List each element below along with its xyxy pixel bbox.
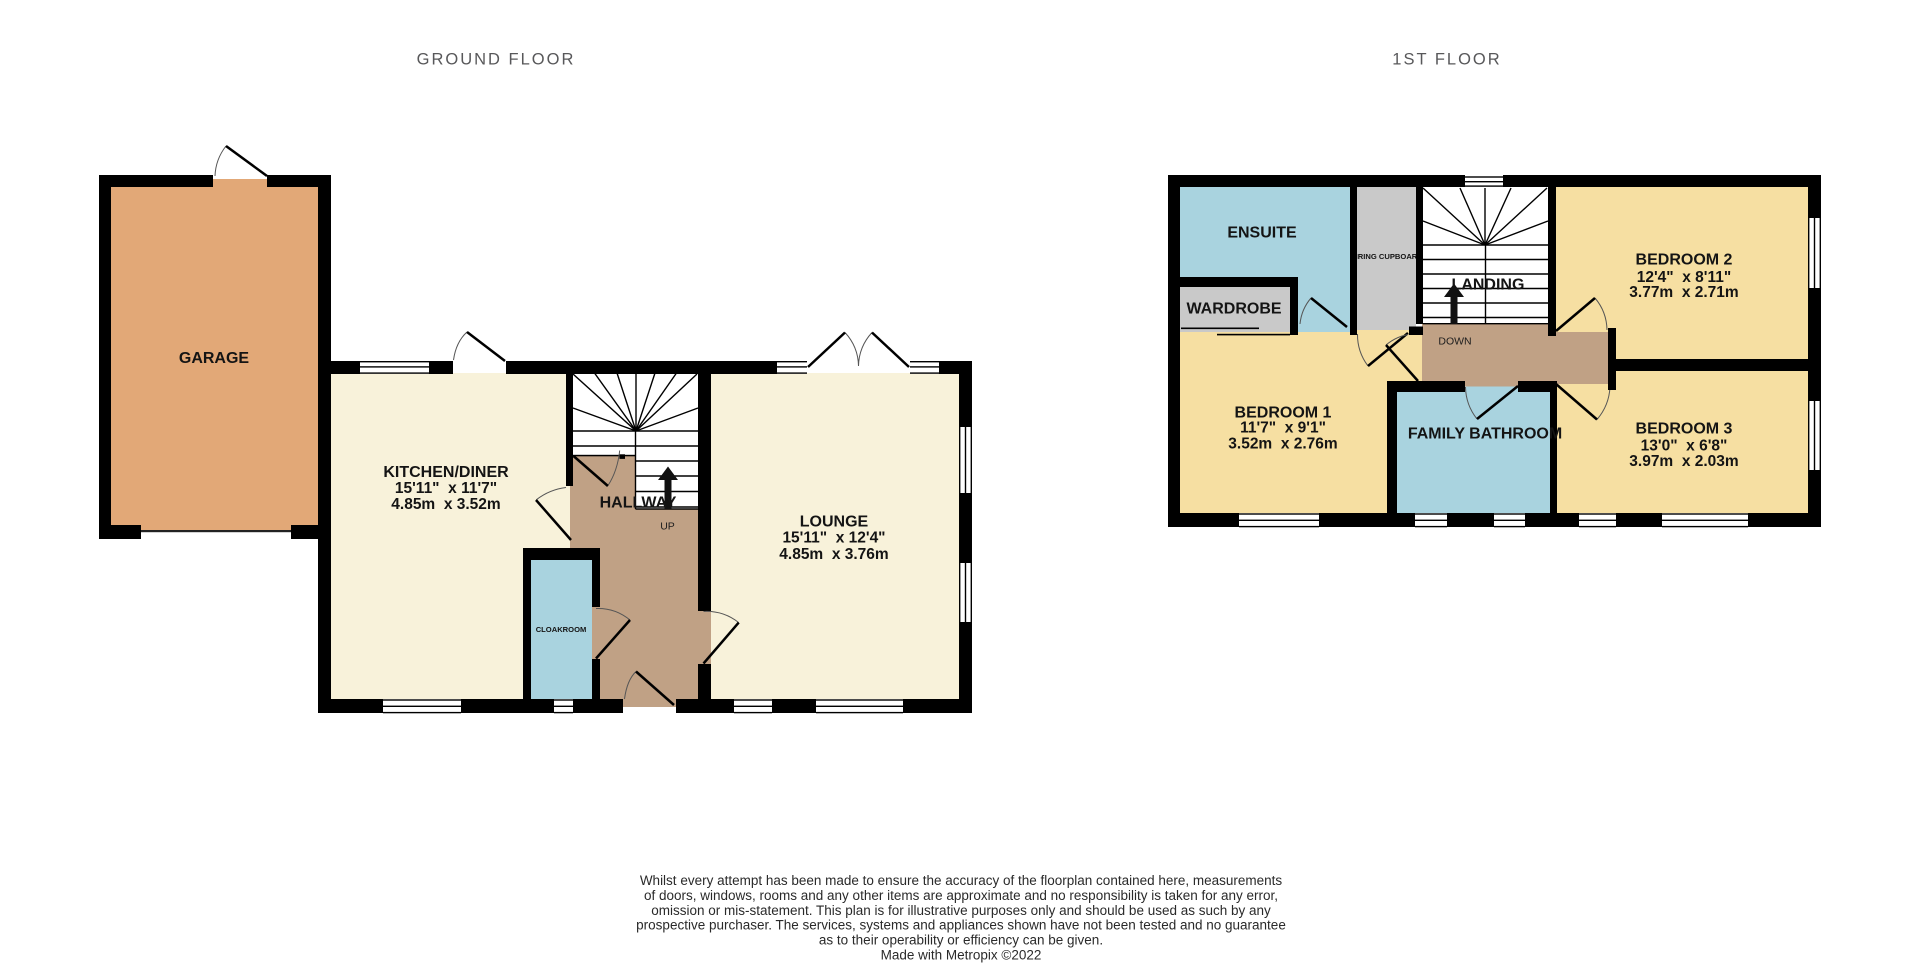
svg-text:BEDROOM 3: BEDROOM 3: [1636, 421, 1733, 438]
svg-text:3.97m x 2.03m: 3.97m x 2.03m: [1629, 453, 1738, 470]
svg-text:as to their operability or eff: as to their operability or efficiency ca…: [819, 933, 1103, 948]
svg-text:BEDROOM 2: BEDROOM 2: [1636, 252, 1733, 269]
svg-text:DOWN: DOWN: [1438, 336, 1471, 348]
svg-text:Whilst every attempt has been: Whilst every attempt has been made to en…: [640, 873, 1283, 888]
svg-text:AIRING CUPBOARD: AIRING CUPBOARD: [1350, 252, 1423, 261]
svg-text:4.85m x 3.52m: 4.85m x 3.52m: [391, 496, 500, 513]
svg-text:3.52m x 2.76m: 3.52m x 2.76m: [1228, 435, 1337, 452]
svg-text:3.77m x 2.71m: 3.77m x 2.71m: [1629, 284, 1738, 301]
svg-text:LANDING: LANDING: [1452, 277, 1525, 294]
svg-text:of doors, windows, rooms and a: of doors, windows, rooms and any other i…: [644, 888, 1278, 903]
svg-text:Made with Metropix ©2022: Made with Metropix ©2022: [881, 948, 1042, 963]
svg-text:GROUND FLOOR: GROUND FLOOR: [417, 51, 576, 69]
svg-text:CLOAKROOM: CLOAKROOM: [536, 625, 587, 634]
svg-text:15'11" x 12'4": 15'11" x 12'4": [782, 530, 885, 547]
svg-text:KITCHEN/DINER: KITCHEN/DINER: [383, 464, 509, 481]
svg-text:omission or mis-statement. Thi: omission or mis-statement. This plan is …: [651, 903, 1271, 918]
svg-text:1ST FLOOR: 1ST FLOOR: [1392, 51, 1501, 69]
svg-text:4.85m x 3.76m: 4.85m x 3.76m: [779, 546, 888, 563]
svg-text:ENSUITE: ENSUITE: [1227, 225, 1297, 242]
svg-text:11'7" x 9'1": 11'7" x 9'1": [1240, 420, 1326, 437]
svg-text:WARDROBE: WARDROBE: [1186, 301, 1281, 318]
svg-text:15'11" x 11'7": 15'11" x 11'7": [395, 480, 497, 497]
svg-text:GARAGE: GARAGE: [179, 350, 250, 367]
svg-text:prospective purchaser. The ser: prospective purchaser. The services, sys…: [636, 918, 1286, 933]
svg-text:FAMILY BATHROOM: FAMILY BATHROOM: [1408, 426, 1562, 443]
svg-text:HALLWAY: HALLWAY: [600, 495, 677, 512]
svg-text:LOUNGE: LOUNGE: [800, 514, 869, 531]
svg-text:UP: UP: [660, 521, 675, 533]
